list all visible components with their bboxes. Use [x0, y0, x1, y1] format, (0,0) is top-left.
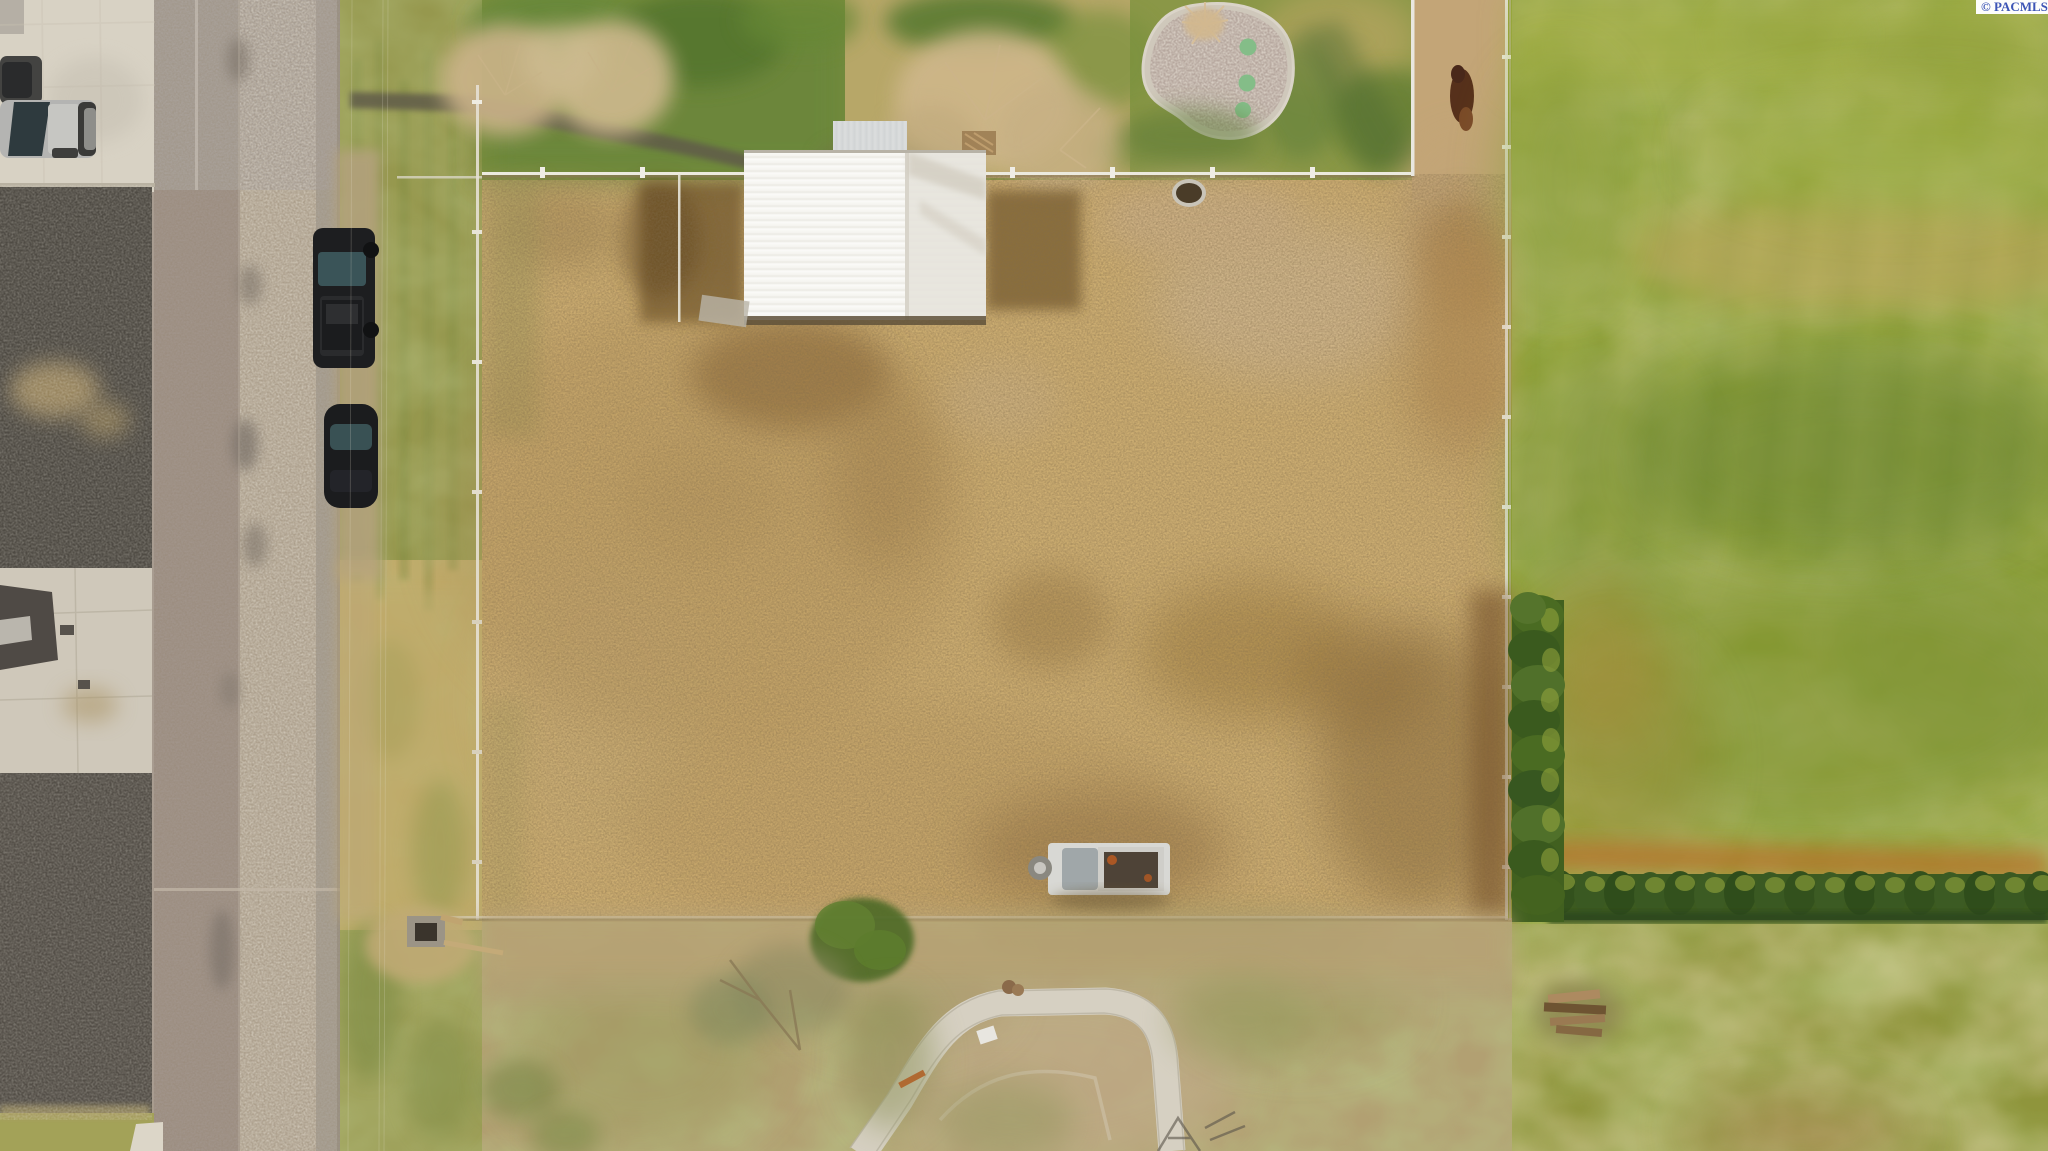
- svg-text:© PACMLS: © PACMLS: [1981, 0, 2048, 14]
